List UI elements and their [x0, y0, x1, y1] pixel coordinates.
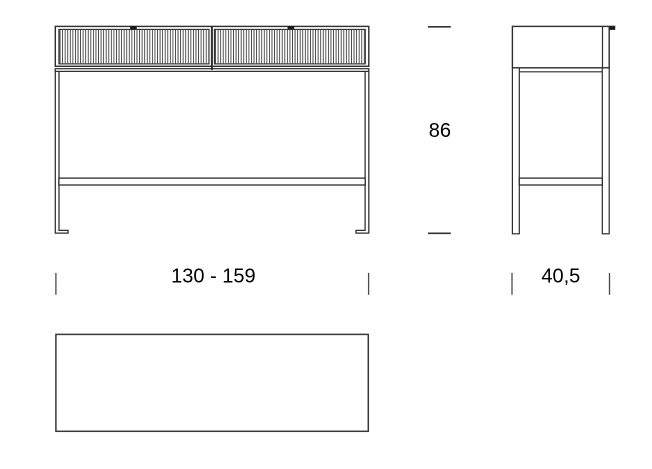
svg-text:40,5: 40,5	[541, 266, 580, 288]
svg-text:130 - 159: 130 - 159	[171, 266, 256, 288]
svg-text:86: 86	[429, 120, 451, 142]
